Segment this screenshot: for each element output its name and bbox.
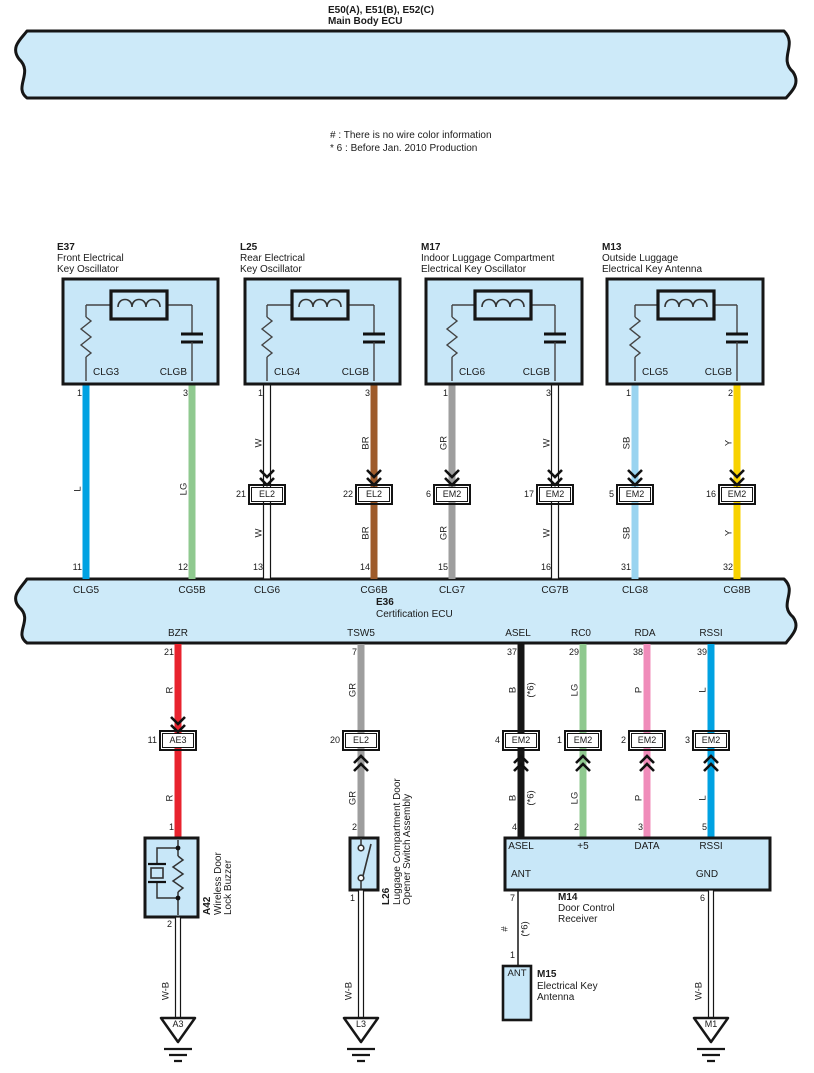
wire-label-gr2-a: GR — [348, 683, 359, 697]
ecu-pad-cg8b: CG8B — [723, 585, 750, 596]
m13-right-pad: CLGB — [692, 367, 732, 378]
connector-el2-21: EL2 — [251, 487, 283, 502]
ant-wire-star6: (*6) — [520, 921, 531, 936]
wire-label-r-a: R — [165, 687, 176, 694]
e37-name1: Front Electrical — [57, 253, 124, 264]
ecu-sig-bzr: BZR — [168, 628, 188, 639]
wire-label-l2-a: L — [698, 687, 709, 692]
ecu-pin-37: 37 — [495, 647, 517, 657]
conn-pin-16: 16 — [694, 489, 716, 499]
connector-em2-17: EM2 — [539, 487, 571, 502]
ecu-pad-cg7b: CG7B — [541, 585, 568, 596]
a42-id: A42 — [203, 852, 214, 915]
m14-pin-2: 2 — [557, 822, 579, 832]
connector-ae3: AE3 — [162, 733, 194, 748]
wire-clg7 — [449, 381, 456, 579]
wb-label-l26: W-B — [344, 982, 355, 1000]
a42-name2: Lock Buzzer — [224, 852, 235, 915]
conn-pin-6: 6 — [409, 489, 431, 499]
m17-pin-3: 3 — [529, 388, 551, 398]
wire-wb-m14 — [709, 890, 714, 1018]
ecu-pin-12: 12 — [166, 562, 188, 572]
m17-pin-1: 1 — [426, 388, 448, 398]
conn-pin-4: 4 — [478, 735, 500, 745]
a42-buzzer-box — [145, 838, 198, 917]
l25-pin-1: 1 — [241, 388, 263, 398]
wire-label-gr2-b: GR — [348, 791, 359, 805]
l26-name2: Opener Switch Assembly — [403, 778, 414, 905]
wire-cg6b — [371, 381, 378, 579]
ecu-pad-cg5b: CG5B — [178, 585, 205, 596]
e37-id: E37 — [57, 242, 75, 253]
ecu-pin-15: 15 — [426, 562, 448, 572]
m14-name1: Door Control — [558, 903, 615, 914]
ecu-pad-clg8: CLG8 — [622, 585, 648, 596]
wiring-diagram: E50(A), E51(B), E52(C) Main Body ECU # :… — [0, 0, 814, 1073]
m13-name2: Electrical Key Antenna — [602, 264, 702, 275]
wire-wb-a42 — [176, 917, 181, 1018]
main-ecu-name: Main Body ECU — [328, 16, 402, 27]
m14-pad-rssi: RSSI — [699, 841, 722, 852]
conn-pin-21: 21 — [224, 489, 246, 499]
wire-wb-l26 — [359, 890, 364, 1018]
wire-label-lg2-a: LG — [570, 684, 581, 697]
ecu-sig-rda: RDA — [634, 628, 655, 639]
wire-label-p-a: P — [634, 687, 645, 693]
m14-name2: Receiver — [558, 914, 597, 925]
connector-em2-16: EM2 — [721, 487, 753, 502]
diagram-graphics — [0, 0, 814, 1073]
ant-wire-hash: # — [500, 926, 511, 931]
m15-name1: Electrical Key — [537, 981, 598, 992]
cert-ecu-name: Certification ECU — [376, 609, 453, 620]
wire-label-br-b: BR — [361, 526, 372, 539]
wire-label-l: L — [73, 486, 84, 491]
conn-pin-5: 5 — [592, 489, 614, 499]
m14-pin-7: 7 — [493, 893, 515, 903]
m14-pin-5: 5 — [685, 822, 707, 832]
a42-pin-2: 2 — [150, 919, 172, 929]
l25-left-pad: CLG4 — [274, 367, 300, 378]
a42-label: A42 Wireless Door Lock Buzzer — [203, 852, 235, 915]
m14-pin-3: 3 — [621, 822, 643, 832]
ecu-sig-rssi: RSSI — [699, 628, 722, 639]
upper-arrow-icons — [260, 470, 744, 485]
m17-id: M17 — [421, 242, 440, 253]
wire-cg7b — [552, 381, 559, 579]
l25-name1: Rear Electrical — [240, 253, 305, 264]
m17-name1: Indoor Luggage Compartment — [421, 253, 554, 264]
wire-label-y-a: Y — [724, 440, 735, 446]
connector-el2-20: EL2 — [345, 733, 377, 748]
l25-id: L25 — [240, 242, 257, 253]
ecu-sig-rc0: RC0 — [571, 628, 591, 639]
m17-left-pad: CLG6 — [459, 367, 485, 378]
wire-cg5b — [189, 381, 196, 579]
wire-label-r-b: R — [165, 795, 176, 802]
l26-label: L26 Luggage Compartment Door Opener Swit… — [382, 778, 414, 905]
m17-box — [426, 279, 582, 384]
cert-ecu-id: E36 — [376, 597, 394, 608]
m14-pad-gnd: GND — [696, 869, 718, 880]
wire-label-gr-b: GR — [439, 526, 450, 540]
wire-label-br-a: BR — [361, 436, 372, 449]
m15-id: M15 — [537, 969, 556, 980]
main-body-ecu-band — [16, 31, 796, 98]
note-production: * 6 : Before Jan. 2010 Production — [330, 143, 477, 154]
ecu-pin-32: 32 — [711, 562, 733, 572]
wire-label-w2a: W — [542, 439, 553, 448]
conn-pin-22: 22 — [331, 489, 353, 499]
wire-clg5 — [83, 381, 90, 579]
connector-el2-22: EL2 — [358, 487, 390, 502]
ecu-pin-29: 29 — [557, 647, 579, 657]
l25-name2: Key Oscillator — [240, 264, 302, 275]
connector-em2-3: EM2 — [695, 733, 727, 748]
e37-left-pad: CLG3 — [93, 367, 119, 378]
connector-em2-1: EM2 — [567, 733, 599, 748]
note-wire-color: # : There is no wire color information — [330, 130, 492, 141]
wire-note-star6-b: (*6) — [526, 790, 537, 805]
connector-em2-6: EM2 — [436, 487, 468, 502]
wire-cg8b — [734, 381, 741, 579]
e37-pin-1: 1 — [60, 388, 82, 398]
connector-em2-4: EM2 — [505, 733, 537, 748]
conn-pin-1: 1 — [540, 735, 562, 745]
connector-em2-2: EM2 — [631, 733, 663, 748]
m14-id: M14 — [558, 892, 577, 903]
wb-label-m14: W-B — [694, 982, 705, 1000]
conn-pin-11b: 11 — [135, 735, 157, 745]
conn-pin-3: 3 — [668, 735, 690, 745]
wire-label-sb-b: SB — [622, 527, 633, 540]
e37-right-pad: CLGB — [147, 367, 187, 378]
l26-pin-1: 1 — [333, 893, 355, 903]
l25-right-pad: CLGB — [329, 367, 369, 378]
wire-label-sb-a: SB — [622, 437, 633, 450]
m17-name2: Electrical Key Oscillator — [421, 264, 526, 275]
e37-box — [63, 279, 218, 384]
ecu-pin-7: 7 — [335, 647, 357, 657]
m13-box — [607, 279, 763, 384]
wire-label-w2b: W — [542, 529, 553, 538]
wire-label-y-b: Y — [724, 530, 735, 536]
main-ecu-code: E50(A), E51(B), E52(C) — [328, 5, 434, 16]
wire-note-star6-a: (*6) — [526, 682, 537, 697]
e37-name2: Key Oscillator — [57, 264, 119, 275]
m17-right-pad: CLGB — [510, 367, 550, 378]
m14-pin-4: 4 — [495, 822, 517, 832]
ecu-sig-tsw5: TSW5 — [347, 628, 375, 639]
wire-label-b-a: B — [508, 687, 519, 693]
ecu-pad-clg6: CLG6 — [254, 585, 280, 596]
wire-label-p-b: P — [634, 795, 645, 801]
conn-pin-20: 20 — [318, 735, 340, 745]
wire-label-b-b: B — [508, 795, 519, 801]
wire-clg8 — [632, 381, 639, 579]
ecu-pin-21: 21 — [152, 647, 174, 657]
ecu-pin-14: 14 — [348, 562, 370, 572]
wire-label-w1a: W — [254, 439, 265, 448]
ecu-pin-39: 39 — [685, 647, 707, 657]
l26-id: L26 — [382, 778, 393, 905]
l26-pin-2: 2 — [335, 822, 357, 832]
m13-name1: Outside Luggage — [602, 253, 678, 264]
ecu-pad-cg6b: CG6B — [360, 585, 387, 596]
wb-label-a42: W-B — [161, 982, 172, 1000]
wire-label-l2-b: L — [698, 795, 709, 800]
wire-label-lg: LG — [179, 483, 190, 496]
ecu-pin-16: 16 — [529, 562, 551, 572]
conn-pin-17: 17 — [512, 489, 534, 499]
m14-pad-data: DATA — [634, 841, 659, 852]
ecu-pad-clg5: CLG5 — [73, 585, 99, 596]
connector-em2-5: EM2 — [619, 487, 651, 502]
m15-pad-ant: ANT — [508, 968, 527, 979]
m15-name2: Antenna — [537, 992, 574, 1003]
ground-label-a3: A3 — [172, 1019, 183, 1030]
conn-pin-2: 2 — [604, 735, 626, 745]
ground-wires — [176, 890, 714, 1018]
wire-label-lg2-b: LG — [570, 792, 581, 805]
wire-label-gr-a: GR — [439, 436, 450, 450]
m14-pad-asel: ASEL — [508, 841, 534, 852]
a42-pin-1: 1 — [152, 822, 174, 832]
ecu-sig-asel: ASEL — [505, 628, 531, 639]
ecu-pin-11: 11 — [60, 562, 82, 572]
ecu-pin-38: 38 — [621, 647, 643, 657]
l26-switch-box — [350, 838, 378, 890]
m15-pin-1: 1 — [493, 950, 515, 960]
ground-label-m1: M1 — [705, 1019, 718, 1030]
e37-pin-3: 3 — [166, 388, 188, 398]
m13-pin-1: 1 — [609, 388, 631, 398]
m13-id: M13 — [602, 242, 621, 253]
ecu-pad-clg7: CLG7 — [439, 585, 465, 596]
ground-label-l3: L3 — [356, 1019, 366, 1030]
ecu-pin-31: 31 — [609, 562, 631, 572]
m13-pin-2: 2 — [711, 388, 733, 398]
ecu-pin-13: 13 — [241, 562, 263, 572]
ground-symbols — [161, 1018, 728, 1061]
m14-pad-plus5: +5 — [577, 841, 588, 852]
l25-pin-3: 3 — [348, 388, 370, 398]
m14-pin-6: 6 — [683, 893, 705, 903]
wire-label-w1b: W — [254, 529, 265, 538]
l25-box — [245, 279, 400, 384]
wire-clg6 — [264, 381, 271, 579]
m14-pad-ant: ANT — [511, 869, 531, 880]
m13-left-pad: CLG5 — [642, 367, 668, 378]
